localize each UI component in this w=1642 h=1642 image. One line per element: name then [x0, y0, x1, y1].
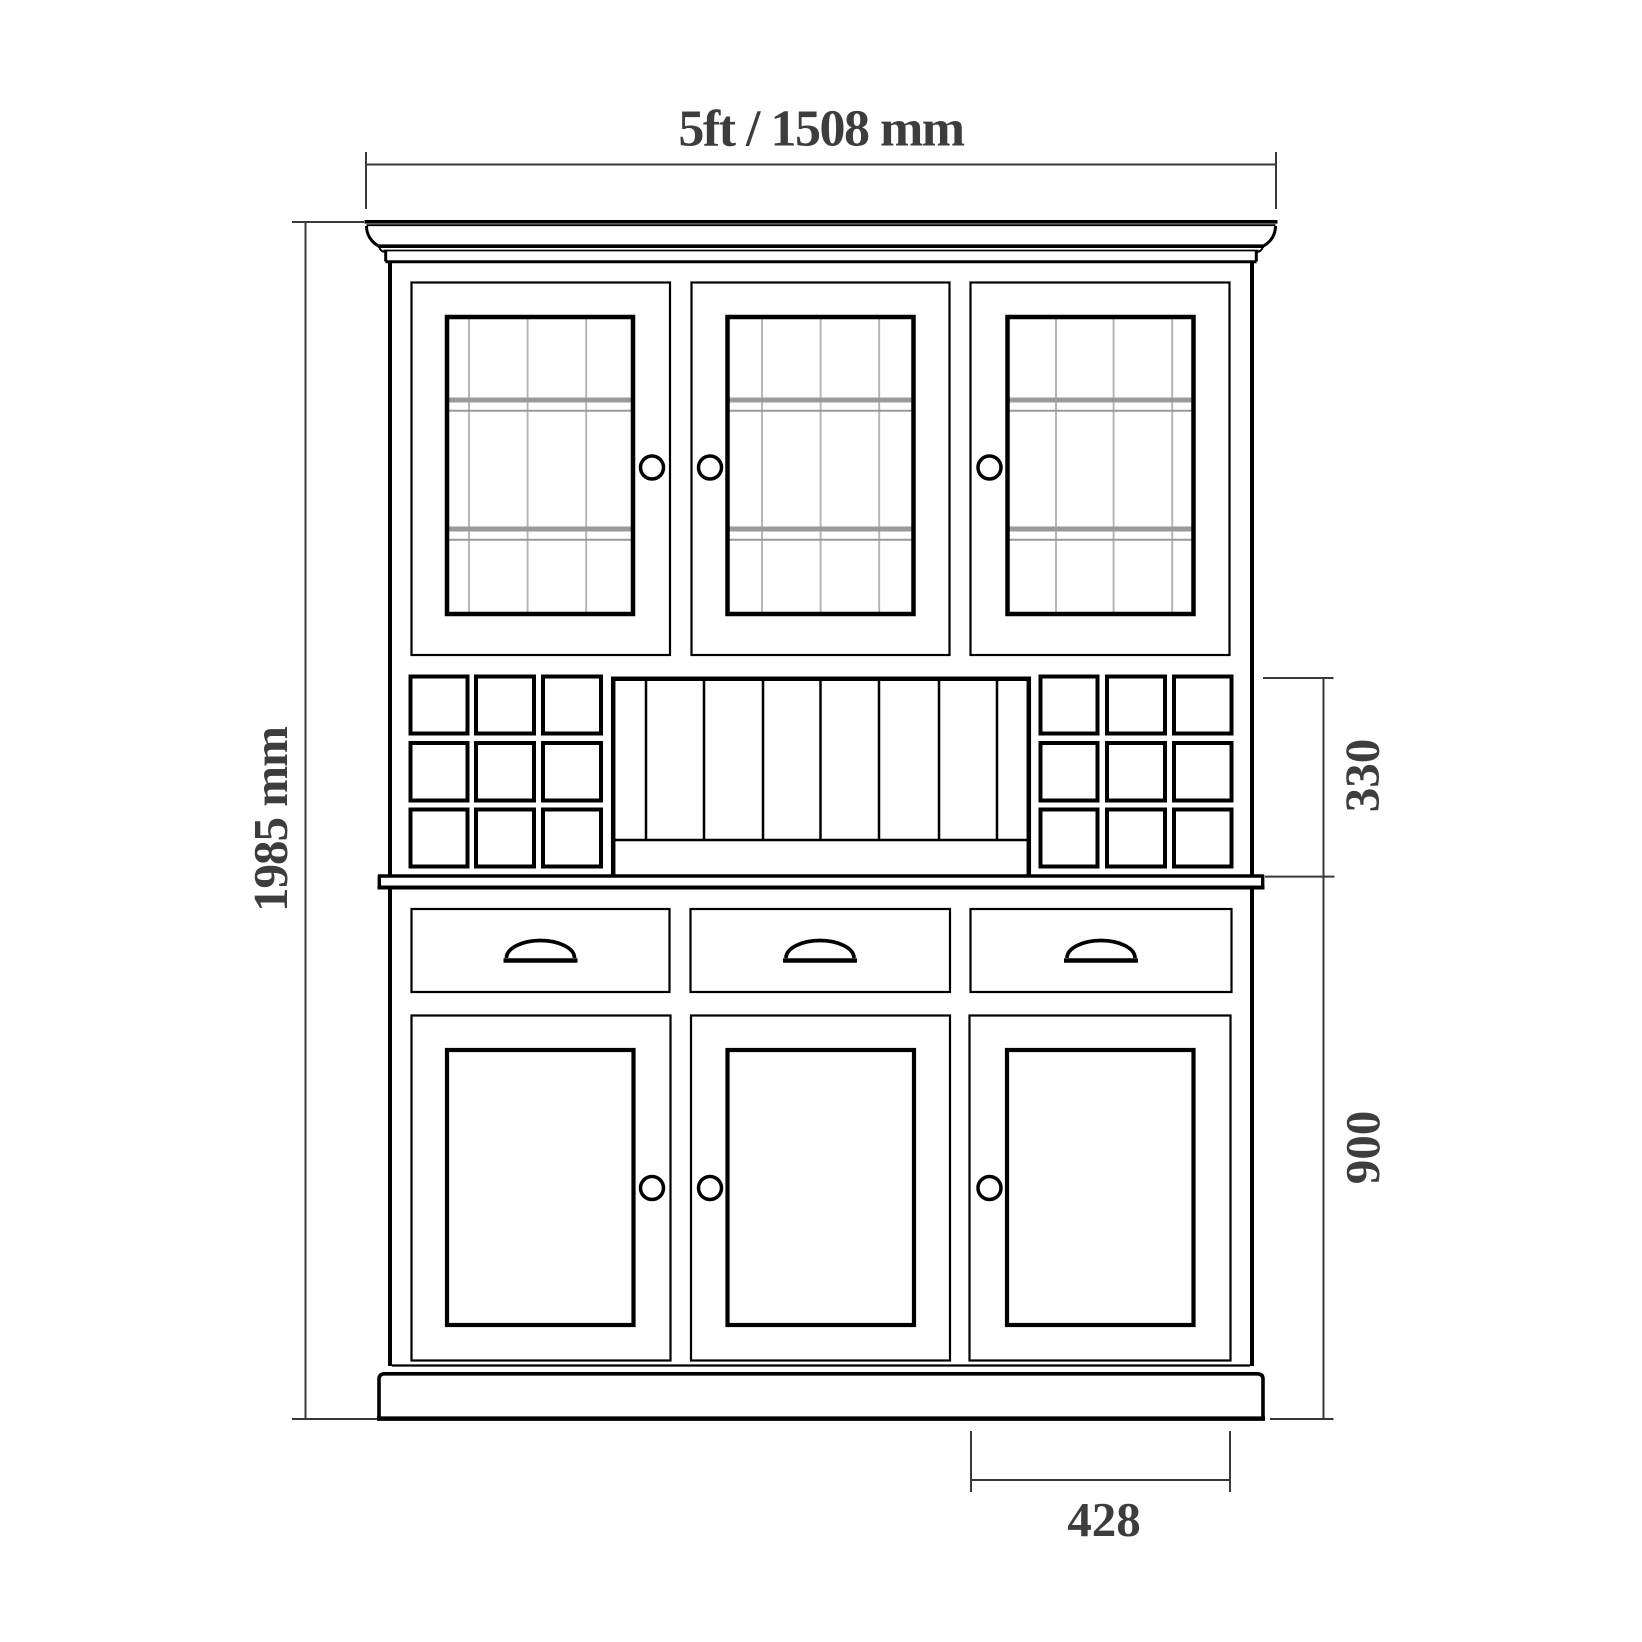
svg-text:1985 mm: 1985 mm — [243, 727, 298, 912]
svg-text:5ft / 1508 mm: 5ft / 1508 mm — [678, 101, 964, 158]
svg-text:330: 330 — [1335, 739, 1390, 813]
svg-text:428: 428 — [1067, 1492, 1141, 1547]
svg-text:900: 900 — [1335, 1111, 1390, 1185]
